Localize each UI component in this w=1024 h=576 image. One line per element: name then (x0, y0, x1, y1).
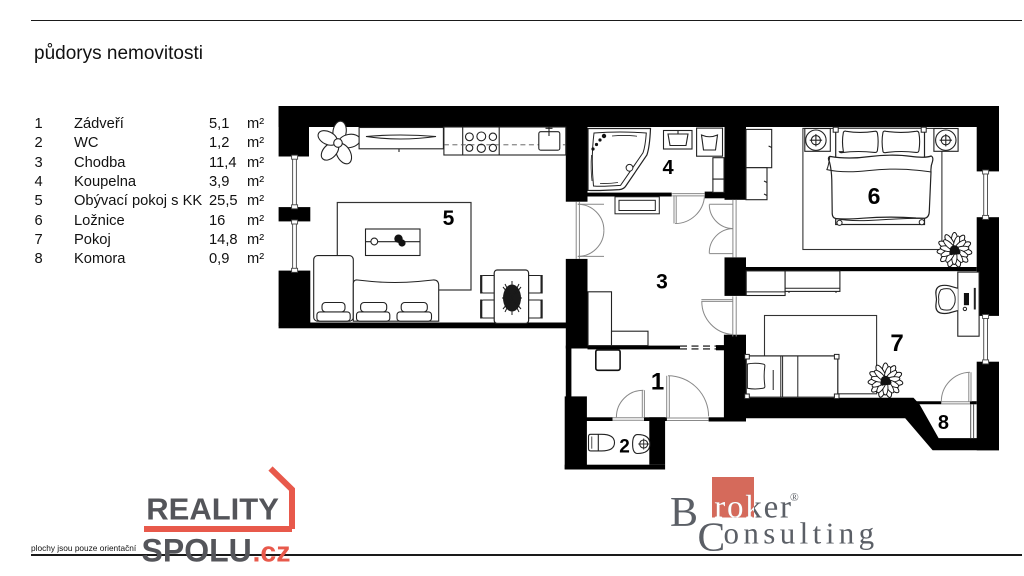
svg-text:6: 6 (868, 183, 881, 209)
svg-text:7: 7 (890, 330, 903, 357)
svg-text:5: 5 (443, 207, 455, 230)
svg-text:4: 4 (662, 157, 674, 179)
svg-text:8: 8 (938, 412, 949, 434)
svg-text:1: 1 (651, 369, 664, 396)
svg-text:2: 2 (619, 437, 630, 458)
svg-text:3: 3 (656, 271, 668, 294)
